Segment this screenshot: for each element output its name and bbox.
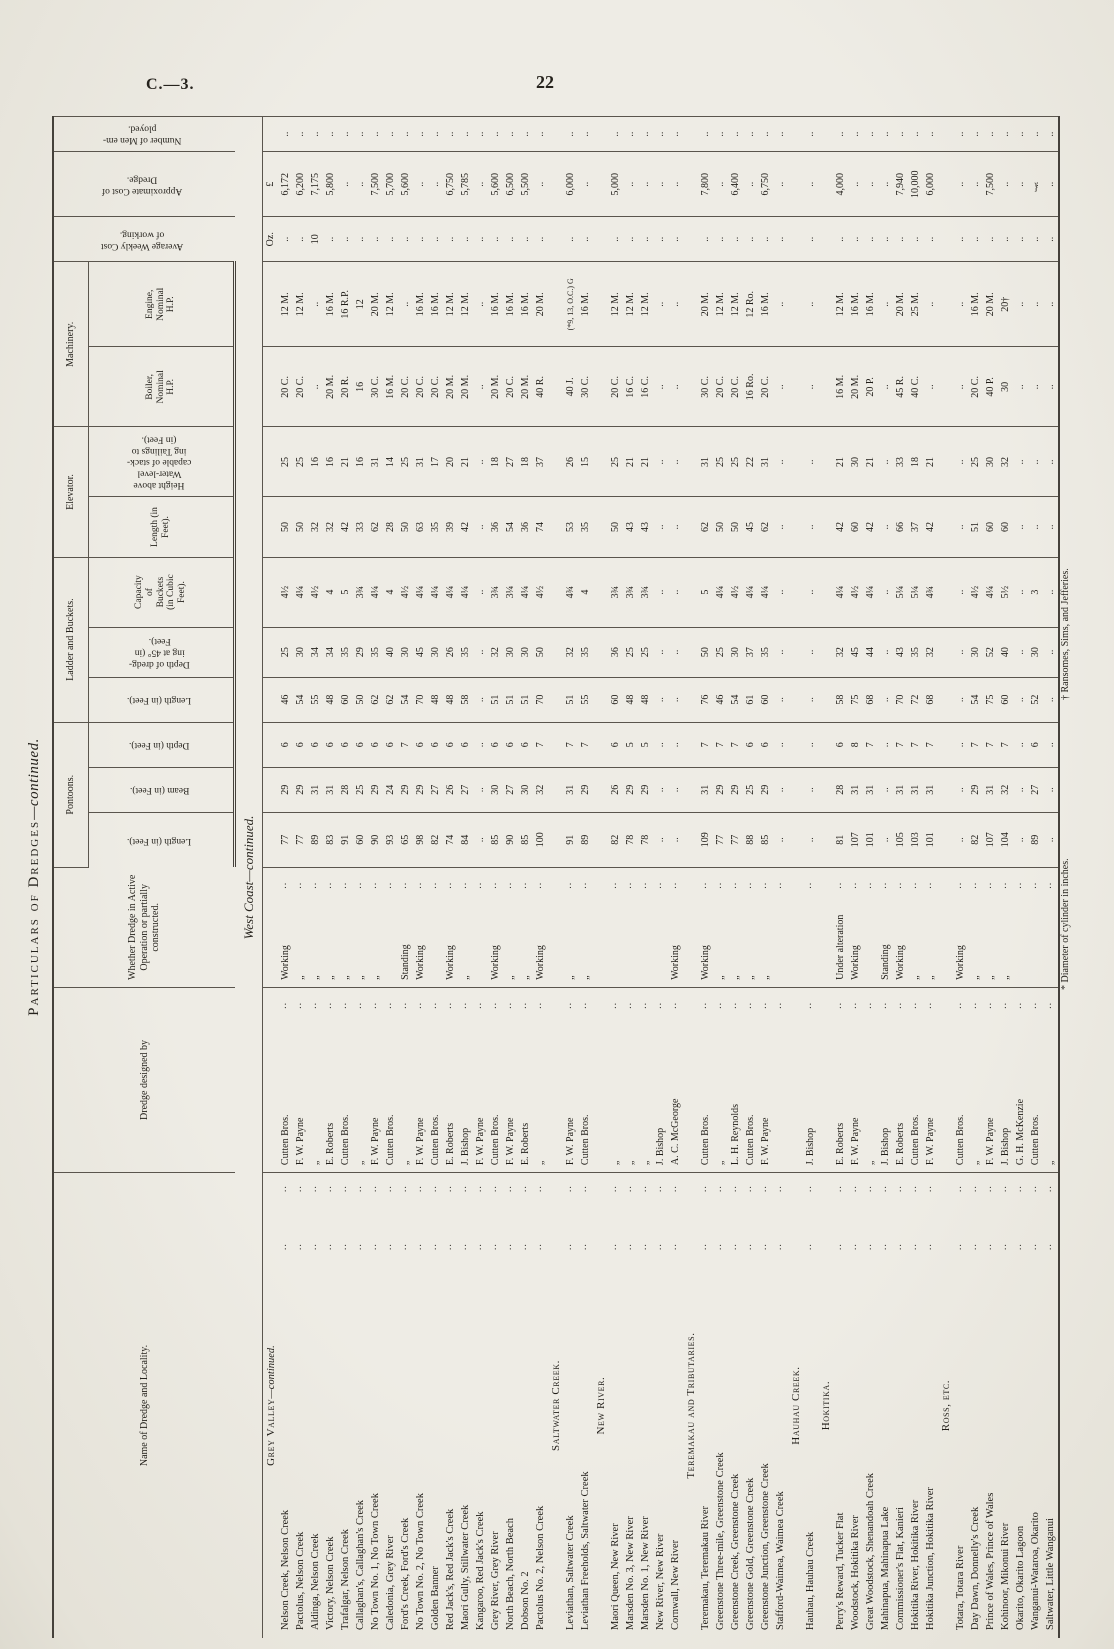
- cell-dredging-depth: 45: [413, 627, 428, 677]
- cell-boiler-hp: ..: [473, 347, 488, 427]
- cell-men-employed: ..: [443, 117, 458, 152]
- cell-dredging-depth: 32: [923, 627, 938, 677]
- cell-name: Maori Gully, Stillwater Creek....: [458, 1173, 473, 1638]
- cell-ladder-length: 48: [638, 677, 653, 722]
- cell-engine-hp: ..: [773, 262, 788, 347]
- cell-engine-hp: 12 M.: [608, 262, 623, 347]
- dredge-name: Greenstone Junction, Greenstone Creek: [760, 1463, 771, 1630]
- dot-leader: ..: [908, 1243, 919, 1250]
- header-group-elevator: Elevator.: [53, 427, 89, 557]
- cell-designer: F. W. Payne..: [473, 987, 488, 1172]
- dredge-name: Maori Gully, Stillwater Creek: [460, 1505, 471, 1630]
- cell-engine-hp: 16 R.P.: [338, 262, 353, 347]
- dot-leader: ..: [893, 1002, 904, 1009]
- cell-men-employed: ..: [893, 117, 908, 152]
- cell-tailings-height: 31: [758, 427, 773, 497]
- dot-leader: ..: [518, 882, 529, 889]
- section-heading: Ross, etc.: [938, 1173, 953, 1638]
- cell-designer: „..: [713, 987, 728, 1172]
- dot-leader: ..: [428, 1185, 439, 1192]
- cell-weekly-cost: ..: [1028, 217, 1043, 262]
- cell-men-employed: ..: [773, 117, 788, 152]
- cell-designer: F. W. Payne..: [758, 987, 773, 1172]
- cell-pontoon-length: 85: [758, 812, 773, 867]
- cell-elevator-length: 42: [863, 497, 878, 557]
- cell-ladder-length: 46: [278, 677, 293, 722]
- cell-approx-cost: 6,200: [293, 152, 308, 217]
- dot-leader: ..: [1043, 882, 1054, 889]
- cell-bucket-capacity: 5: [338, 557, 353, 627]
- cell-status: „..: [518, 867, 533, 987]
- cell-dredging-depth: 30: [1028, 627, 1043, 677]
- cell-weekly-cost: ..: [413, 217, 428, 262]
- cell-pontoon-length: ..: [1043, 812, 1059, 867]
- dot-leader: ..: [353, 1185, 364, 1192]
- dredge-name: Aldinga, Nelson Creek: [310, 1533, 321, 1630]
- cell-status: Under alteration..: [833, 867, 848, 987]
- table-row: Totara, Totara River....Cutten Bros...Wo…: [953, 117, 968, 1639]
- cell-weekly-cost: ..: [833, 217, 848, 262]
- table-row: Golden Banner....Cutten Bros.....8227648…: [428, 117, 443, 1639]
- designer-name: Cutten Bros.: [700, 1115, 711, 1166]
- cell-status: Working..: [413, 867, 428, 987]
- cell-men-employed: ..: [428, 117, 443, 152]
- cell-pontoon-beam: 29: [758, 767, 773, 812]
- cell-dredging-depth: ..: [653, 627, 668, 677]
- cell-boiler-hp: 40 P.: [983, 347, 998, 427]
- cell-elevator-length: 50: [608, 497, 623, 557]
- cell-approx-cost: ..: [533, 152, 548, 217]
- cell-weekly-cost: 10: [308, 217, 323, 262]
- cell-approx-cost: ..: [1043, 152, 1059, 217]
- header-approx-cost-label: Approximate Cost of Dredge.: [102, 173, 182, 196]
- cell-men-employed: ..: [923, 117, 938, 152]
- cell-elevator-length: 50: [398, 497, 413, 557]
- cell-men-employed: ..: [668, 117, 683, 152]
- cell-ladder-length: 72: [908, 677, 923, 722]
- designer-name: „: [355, 1161, 366, 1165]
- cell-ladder-length: 54: [968, 677, 983, 722]
- dot-leader: ..: [353, 882, 364, 889]
- cell-status: Standing..: [878, 867, 893, 987]
- cell-men-employed: ..: [803, 117, 818, 152]
- cell-bucket-capacity: 4¼: [863, 557, 878, 627]
- cell-boiler-hp: 20 M.: [458, 347, 473, 427]
- cell-approx-cost: [788, 152, 803, 217]
- cell-elevator-length: [683, 497, 698, 557]
- designer-name: F. W. Payne: [505, 1118, 516, 1166]
- cell-approx-cost: 5,800: [323, 152, 338, 217]
- cell-pontoon-depth: 7: [863, 722, 878, 767]
- dot-leader: ..: [833, 1185, 844, 1192]
- cell-weekly-cost: ..: [608, 217, 623, 262]
- section-heading-main: Hokitika.: [820, 1381, 832, 1430]
- cell-tailings-height: 31: [698, 427, 713, 497]
- cell-designer: „..: [863, 987, 878, 1172]
- dot-leader: ..: [863, 1185, 874, 1192]
- cell-engine-hp: ..: [653, 262, 668, 347]
- cell-name: Kangaroo, Red Jack's Creek....: [473, 1173, 488, 1638]
- cell-men-employed: ..: [983, 117, 998, 152]
- cell-weekly-cost: ..: [368, 217, 383, 262]
- cell-status: Working..: [278, 867, 293, 987]
- dredge-name: New River, New River: [655, 1534, 666, 1630]
- dredge-name: Golden Banner: [430, 1566, 441, 1630]
- dredge-name: Commissioner's Flat, Kanieri: [895, 1507, 906, 1630]
- cell-pontoon-depth: 8: [848, 722, 863, 767]
- cell-weekly-cost: ..: [1013, 217, 1028, 262]
- cell-dredging-depth: [263, 627, 279, 677]
- cell-bucket-capacity: ..: [668, 557, 683, 627]
- dot-leader: ..: [413, 1002, 424, 1009]
- cell-status: „..: [743, 867, 758, 987]
- cell-name: Marsden No. 3, New River....: [623, 1173, 638, 1638]
- cell-pontoon-beam: 29: [293, 767, 308, 812]
- cell-pontoon-depth: 7: [998, 722, 1013, 767]
- cell-bucket-capacity: 4½: [398, 557, 413, 627]
- cell-weekly-cost: ..: [293, 217, 308, 262]
- cell-status: ..: [608, 867, 623, 987]
- cell-elevator-length: 60: [983, 497, 998, 557]
- cell-engine-hp: 20†: [998, 262, 1013, 347]
- cell-engine-hp: [818, 262, 833, 347]
- dredge-name: Leviathan, Saltwater Creek: [565, 1515, 576, 1630]
- cell-elevator-length: 50: [713, 497, 728, 557]
- status-value: „: [715, 975, 726, 979]
- dot-leader: ..: [653, 882, 664, 889]
- cell-pontoon-beam: 29: [413, 767, 428, 812]
- dredge-name: Pactolus, Nelson Creek: [295, 1532, 306, 1630]
- cell-pontoon-length: 74: [443, 812, 458, 867]
- cell-name: Leviathan, Saltwater Creek....: [563, 1173, 578, 1638]
- designer-name: „: [865, 1161, 876, 1165]
- cell-pontoon-beam: 27: [1028, 767, 1043, 812]
- cell-designer: F. W. Payne..: [413, 987, 428, 1172]
- cell-bucket-capacity: [818, 557, 833, 627]
- cell-bucket-capacity: 4¼: [368, 557, 383, 627]
- cell-pontoon-length: 89: [578, 812, 593, 867]
- cell-weekly-cost: Oz.: [263, 217, 279, 262]
- cell-designer: [548, 987, 563, 1172]
- dredge-name: Day Dawn, Donnelly's Creek: [970, 1507, 981, 1630]
- dot-leader: ..: [608, 1243, 619, 1250]
- cell-tailings-height: 25: [713, 427, 728, 497]
- cell-engine-hp: ..: [953, 262, 968, 347]
- cell-designer: Cutten Bros...: [578, 987, 593, 1172]
- header-dredging-depth-label: Depth of dredg- ing at 45° (in Feet).: [129, 635, 190, 669]
- cell-engine-hp: ..: [398, 262, 413, 347]
- dot-leader: ..: [653, 1185, 664, 1192]
- header-men-employed-label: Number of Men em- ployed.: [103, 123, 181, 146]
- cell-boiler-hp: ..: [308, 347, 323, 427]
- cell-boiler-hp: 30 C.: [368, 347, 383, 427]
- cell-name: Callaghan's, Callaghan's Creek....: [353, 1173, 368, 1638]
- cell-engine-hp: 12 Ro.: [743, 262, 758, 347]
- cell-engine-hp: 12 M.: [638, 262, 653, 347]
- cell-engine-hp: 25 M.: [908, 262, 923, 347]
- cell-tailings-height: 20: [443, 427, 458, 497]
- status-value: Standing: [400, 944, 411, 980]
- cell-pontoon-depth: 5: [623, 722, 638, 767]
- cell-men-employed: ..: [863, 117, 878, 152]
- cell-pontoon-depth: 6: [368, 722, 383, 767]
- section-heading-main: Teremakau and Tributaries.: [685, 1332, 697, 1478]
- cell-pontoon-length: 84: [458, 812, 473, 867]
- cell-tailings-height: 25: [398, 427, 413, 497]
- cell-designer: J. Bishop..: [878, 987, 893, 1172]
- cell-status: ..: [863, 867, 878, 987]
- cell-dredging-depth: 45: [848, 627, 863, 677]
- cell-name: North Beach, North Beach....: [503, 1173, 518, 1638]
- cell-boiler-hp: 20 M.: [323, 347, 338, 427]
- cell-boiler-hp: ..: [773, 347, 788, 427]
- section-heading-suffix: —continued.: [266, 1345, 277, 1398]
- section-heading: Saltwater Creek.: [548, 1173, 563, 1638]
- cell-approx-cost: ..: [578, 152, 593, 217]
- cell-weekly-cost: ..: [398, 217, 413, 262]
- cell-status: „..: [323, 867, 338, 987]
- header-pontoon-beam-label: Beam (in Feet).: [130, 784, 189, 795]
- dot-leader: ..: [293, 1002, 304, 1009]
- section-row: Saltwater Creek.: [548, 117, 563, 1639]
- cell-weekly-cost: ..: [533, 217, 548, 262]
- cell-designer: [788, 987, 803, 1172]
- cell-engine-hp: 16 M.: [518, 262, 533, 347]
- cell-name: Commissioner's Flat, Kanieri....: [893, 1173, 908, 1638]
- cell-status: [548, 867, 563, 987]
- cell-engine-hp: ..: [1013, 262, 1028, 347]
- cell-weekly-cost: ..: [578, 217, 593, 262]
- dot-leader: ..: [893, 1185, 904, 1192]
- designer-name: Cutten Bros.: [340, 1115, 351, 1166]
- cell-pontoon-beam: 29: [968, 767, 983, 812]
- designer-name: „: [310, 1161, 321, 1165]
- cell-men-employed: ..: [533, 117, 548, 152]
- cell-bucket-capacity: 4½: [968, 557, 983, 627]
- dot-leader: ..: [953, 1002, 964, 1009]
- cell-boiler-hp: 20 M.: [443, 347, 458, 427]
- cell-tailings-height: ..: [1028, 427, 1043, 497]
- cell-elevator-length: [938, 497, 953, 557]
- designer-name: Cutten Bros.: [955, 1115, 966, 1166]
- cell-tailings-height: 14: [383, 427, 398, 497]
- cell-pontoon-length: 60: [353, 812, 368, 867]
- cell-status: „..: [308, 867, 323, 987]
- dot-leader: ..: [278, 1185, 289, 1192]
- cell-pontoon-beam: [263, 767, 279, 812]
- cell-dredging-depth: ..: [1013, 627, 1028, 677]
- designer-name: J. Bishop: [1000, 1128, 1011, 1165]
- cell-engine-hp: 16 M.: [863, 262, 878, 347]
- dredge-name: Dobson No. 2: [520, 1571, 531, 1630]
- cell-ladder-length: 62: [368, 677, 383, 722]
- cell-pontoon-depth: ..: [953, 722, 968, 767]
- table-row: Saltwater, Little Wanganui....„.........…: [1043, 117, 1059, 1639]
- cell-men-employed: ..: [713, 117, 728, 152]
- cell-designer: „..: [398, 987, 413, 1172]
- cell-ladder-length: ..: [773, 677, 788, 722]
- cell-bucket-capacity: ..: [1043, 557, 1059, 627]
- cell-ladder-length: 68: [923, 677, 938, 722]
- cell-bucket-capacity: 4: [323, 557, 338, 627]
- cell-bucket-capacity: [788, 557, 803, 627]
- cell-bucket-capacity: 3¾: [638, 557, 653, 627]
- dot-leader: ..: [563, 1002, 574, 1009]
- cell-pontoon-length: 101: [863, 812, 878, 867]
- cell-tailings-height: 21: [923, 427, 938, 497]
- cell-elevator-length: 54: [503, 497, 518, 557]
- cell-status: ..: [623, 867, 638, 987]
- cell-engine-hp: 12 M.: [443, 262, 458, 347]
- cell-approx-cost: 7,500: [368, 152, 383, 217]
- cell-pontoon-beam: 25: [353, 767, 368, 812]
- status-value: Working: [415, 945, 426, 980]
- cell-engine-hp: 16 M.: [758, 262, 773, 347]
- cell-dredging-depth: ..: [878, 627, 893, 677]
- table-row: Caledonia, Grey River....Cutten Bros....…: [383, 117, 398, 1639]
- dot-leader: ..: [623, 1243, 634, 1250]
- dot-leader: ..: [713, 1185, 724, 1192]
- cell-boiler-hp: 40 C.: [908, 347, 923, 427]
- cell-men-employed: ..: [758, 117, 773, 152]
- cell-men-employed: ..: [908, 117, 923, 152]
- cell-pontoon-length: [818, 812, 833, 867]
- cell-men-employed: ..: [833, 117, 848, 152]
- cell-status: „..: [578, 867, 593, 987]
- cell-ladder-length: [593, 677, 608, 722]
- cell-name: Prince of Wales, Prince of Wales....: [983, 1173, 998, 1638]
- cell-tailings-height: 15: [578, 427, 593, 497]
- cell-elevator-length: ..: [653, 497, 668, 557]
- table-row: Leviathan Freeholds, Saltwater Creek....…: [578, 117, 593, 1639]
- cell-pontoon-beam: ..: [803, 767, 818, 812]
- cell-weekly-cost: ..: [653, 217, 668, 262]
- cell-pontoon-depth: 7: [923, 722, 938, 767]
- status-value: Working: [535, 945, 546, 980]
- cell-status: Standing..: [398, 867, 413, 987]
- cell-approx-cost: ..: [968, 152, 983, 217]
- status-value: „: [760, 975, 771, 979]
- dot-leader: ..: [638, 882, 649, 889]
- cell-weekly-cost: ..: [458, 217, 473, 262]
- cell-pontoon-length: [548, 812, 563, 867]
- cell-approx-cost: 5,500: [518, 152, 533, 217]
- cell-ladder-length: ..: [878, 677, 893, 722]
- dot-leader: ..: [518, 1243, 529, 1250]
- dot-leader: ..: [323, 1002, 334, 1009]
- cell-tailings-height: 21: [863, 427, 878, 497]
- header-designer-label: Dredge designed by: [139, 1040, 151, 1120]
- cell-men-employed: ..: [323, 117, 338, 152]
- table-row: Hokitika Junction, Hokitika River....F. …: [923, 117, 938, 1639]
- dot-leader: ..: [863, 1002, 874, 1009]
- cell-pontoon-depth: 6: [833, 722, 848, 767]
- cell-boiler-hp: 20 C.: [503, 347, 518, 427]
- dot-leader: ..: [1043, 1185, 1054, 1192]
- cell-tailings-height: 18: [908, 427, 923, 497]
- cell-engine-hp: 20 M.: [698, 262, 713, 347]
- cell-designer: „..: [1043, 987, 1059, 1172]
- status-value: Working: [445, 945, 456, 980]
- cell-elevator-length: 37: [908, 497, 923, 557]
- designer-name: F. W. Payne: [925, 1118, 936, 1166]
- dot-leader: ..: [338, 1002, 349, 1009]
- cell-men-employed: ..: [1043, 117, 1059, 152]
- dot-leader: ..: [428, 882, 439, 889]
- cell-weekly-cost: ..: [848, 217, 863, 262]
- cell-weekly-cost: ..: [713, 217, 728, 262]
- cell-pontoon-length: 100: [533, 812, 548, 867]
- cell-pontoon-length: 90: [503, 812, 518, 867]
- cell-pontoon-depth: 6: [488, 722, 503, 767]
- cell-men-employed: ..: [578, 117, 593, 152]
- header-group-machinery-label: Machinery.: [65, 322, 76, 367]
- cell-pontoon-depth: 6: [608, 722, 623, 767]
- cell-designer: F. W. Payne..: [563, 987, 578, 1172]
- cell-weekly-cost: ..: [983, 217, 998, 262]
- cell-name: Perry's Reward, Tucker Flat....: [833, 1173, 848, 1638]
- cell-status: ..: [1028, 867, 1043, 987]
- dredge-name: Wanganui-Wataroa, Okarito: [1030, 1512, 1041, 1630]
- designer-name: F. W. Payne: [370, 1118, 381, 1166]
- cell-elevator-length: 74: [533, 497, 548, 557]
- cell-name: New River, New River....: [653, 1173, 668, 1638]
- cell-boiler-hp: ..: [878, 347, 893, 427]
- header-group-ladder: Ladder and Buckets.: [53, 557, 89, 722]
- cell-status: Working..: [698, 867, 713, 987]
- cell-dredging-depth: 32: [833, 627, 848, 677]
- cell-ladder-length: 60: [338, 677, 353, 722]
- dot-leader: ..: [983, 1243, 994, 1250]
- cell-boiler-hp: 20 C.: [758, 347, 773, 427]
- cell-boiler-hp: 20 R.: [338, 347, 353, 427]
- cell-ladder-length: 62: [383, 677, 398, 722]
- designer-name: E. Roberts: [325, 1123, 336, 1165]
- cell-designer: Cutten Bros...: [908, 987, 923, 1172]
- cell-pontoon-depth: [683, 722, 698, 767]
- cell-tailings-height: 32: [998, 427, 1013, 497]
- cell-boiler-hp: ..: [653, 347, 668, 427]
- cell-approx-cost: [938, 152, 953, 217]
- cell-men-employed: ..: [293, 117, 308, 152]
- dot-leader: ..: [563, 882, 574, 889]
- cell-pontoon-length: 109: [698, 812, 713, 867]
- table-row: Mahinapua, Mahinapua Lake....J. Bishop..…: [878, 117, 893, 1639]
- cell-weekly-cost: [593, 217, 608, 262]
- dot-leader: ..: [323, 1243, 334, 1250]
- cell-bucket-capacity: [593, 557, 608, 627]
- dot-leader: ..: [908, 882, 919, 889]
- dot-leader: ..: [533, 1185, 544, 1192]
- cell-name: Mahinapua, Mahinapua Lake....: [878, 1173, 893, 1638]
- cell-bucket-capacity: 5¼: [908, 557, 923, 627]
- cell-pontoon-depth: 7: [728, 722, 743, 767]
- dredge-name: Nelson Creek, Nelson Creek: [280, 1510, 291, 1630]
- cell-engine-hp: 16 M.: [503, 262, 518, 347]
- cell-status: ..: [803, 867, 818, 987]
- cell-dredging-depth: 36: [608, 627, 623, 677]
- cell-bucket-capacity: ..: [773, 557, 788, 627]
- cell-pontoon-length: [593, 812, 608, 867]
- dot-leader: ..: [863, 1243, 874, 1250]
- cell-ladder-length: 70: [413, 677, 428, 722]
- designer-name: „: [610, 1161, 621, 1165]
- cell-men-employed: ..: [953, 117, 968, 152]
- cell-approx-cost: [818, 152, 833, 217]
- cell-pontoon-depth: 6: [293, 722, 308, 767]
- status-value: Working: [700, 945, 711, 980]
- cell-dredging-depth: 34: [323, 627, 338, 677]
